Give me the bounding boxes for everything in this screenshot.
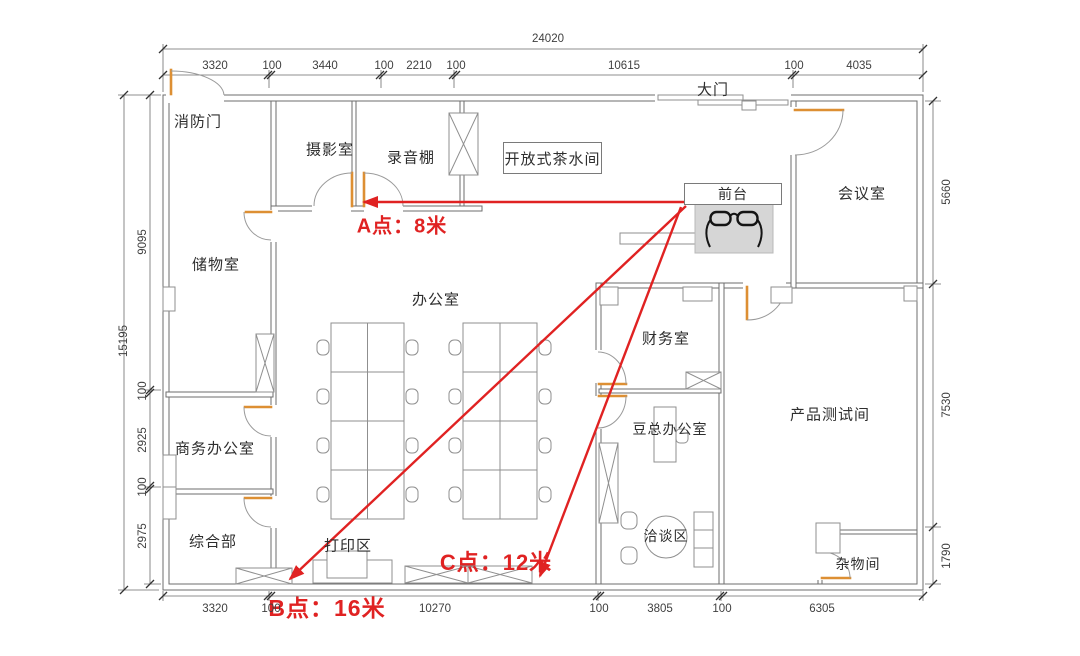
- dim-left-0: 9095: [137, 229, 149, 255]
- cabinet: [686, 372, 721, 389]
- room-label-finance-room: 财务室: [642, 328, 690, 349]
- wall-shelf: [163, 487, 176, 519]
- dim-left-2: 2925: [137, 427, 149, 453]
- room-label-reception: 前台: [684, 183, 782, 205]
- wall-shelf: [163, 455, 176, 487]
- dim-bottom-0: 3320: [202, 603, 228, 615]
- room-label-office: 办公室: [412, 289, 460, 310]
- office-desk-bank-right: [449, 323, 551, 519]
- room-label-main-gate: 大门: [697, 79, 729, 100]
- room-label-storage-room: 储物室: [192, 254, 240, 275]
- shaft-column: [449, 113, 478, 175]
- shaft-column: [256, 334, 274, 392]
- dim-bottom-1: 100: [261, 603, 280, 615]
- meeting-room-door: [795, 110, 843, 155]
- wall-pilaster: [683, 287, 712, 301]
- dim-top-6: 10615: [608, 60, 640, 72]
- annotation-point-b: B点：16米: [268, 589, 385, 623]
- storage-room-door: [244, 212, 271, 240]
- dim-left-total: 15195: [118, 325, 130, 357]
- dim-bottom-6: 6305: [809, 603, 835, 615]
- dim-top-2: 3440: [312, 60, 338, 72]
- room-label-fire-door: 消防门: [174, 111, 222, 132]
- room-label-print-area: 打印区: [324, 535, 372, 556]
- dim-right-2: 1790: [941, 543, 953, 569]
- room-label-open-pantry: 开放式茶水间: [503, 142, 602, 174]
- dim-bottom-2: 10270: [419, 603, 451, 615]
- printer-table: [313, 551, 392, 583]
- dim-top-7: 100: [784, 60, 803, 72]
- dim-top-4: 2210: [406, 60, 432, 72]
- dim-top-0: 3320: [202, 60, 228, 72]
- wall-pilaster: [771, 287, 792, 303]
- dim-left-4: 2975: [137, 523, 149, 549]
- shaft-column: [599, 443, 618, 523]
- wall-pilaster: [904, 286, 917, 301]
- fire-exit-door: [171, 70, 224, 95]
- dim-left-1: 100: [137, 381, 149, 400]
- dim-top-total: 24020: [532, 33, 564, 45]
- wall-shelf: [163, 287, 175, 311]
- room-label-recording-studio: 录音棚: [387, 147, 435, 168]
- dim-right-1: 7530: [941, 392, 953, 418]
- dim-top-5: 100: [446, 60, 465, 72]
- wall-pilaster: [600, 287, 618, 305]
- dim-bottom-5: 100: [712, 603, 731, 615]
- annotation-point-a: A点：8米: [357, 210, 448, 239]
- room-label-sundry-room: 杂物间: [836, 554, 881, 574]
- dim-top-3: 100: [374, 60, 393, 72]
- floor-plan-canvas: 消防门 摄影室 录音棚 大门 会议室 储物室 办公室 财务室 商务办公室 豆总办…: [0, 0, 1080, 656]
- room-label-dou-office: 豆总办公室: [633, 419, 708, 439]
- photo-room-door: [314, 173, 352, 206]
- glasses-photo: [695, 202, 773, 253]
- general-dept-door: [244, 498, 271, 527]
- business-office-door: [244, 407, 271, 436]
- room-label-meeting-room: 会议室: [838, 183, 886, 204]
- wall-pilaster: [816, 523, 840, 553]
- dim-bottom-4: 3805: [647, 603, 673, 615]
- annotation-point-c: C点：12米: [440, 545, 552, 577]
- dim-top-1: 100: [262, 60, 281, 72]
- office-desk-bank-left: [317, 323, 418, 519]
- dim-left-3: 100: [137, 477, 149, 496]
- dim-right-0: 5660: [941, 179, 953, 205]
- reception-counter: [620, 233, 697, 244]
- room-label-negotiation-area: 洽谈区: [644, 526, 689, 546]
- room-label-product-test-room: 产品测试间: [790, 404, 870, 425]
- dim-bottom-3: 100: [589, 603, 608, 615]
- cabinet: [236, 568, 292, 584]
- room-label-photo-room: 摄影室: [306, 139, 354, 160]
- room-label-business-office: 商务办公室: [175, 438, 255, 459]
- room-label-general-dept: 综合部: [189, 531, 237, 552]
- dim-top-8: 4035: [846, 60, 872, 72]
